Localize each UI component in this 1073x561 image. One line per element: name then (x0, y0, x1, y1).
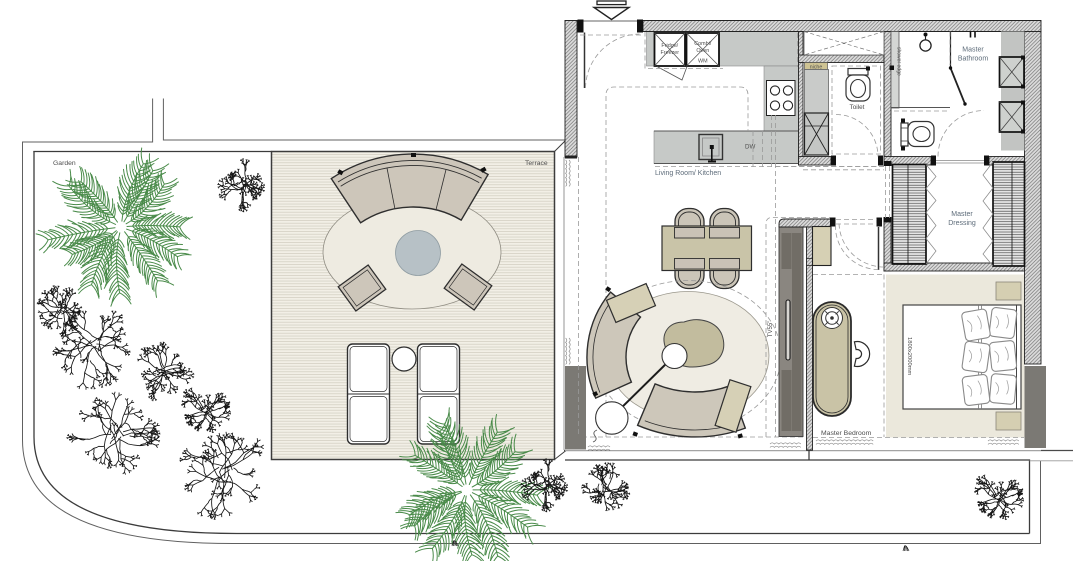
svg-text:WM: WM (698, 59, 708, 65)
svg-text:Living Room/ Kitchen: Living Room/ Kitchen (655, 170, 721, 177)
svg-text:TV55”: TV55” (768, 321, 774, 337)
svg-text:Master: Master (962, 47, 984, 54)
svg-text:Combi/: Combi/ (694, 41, 712, 47)
svg-text:Fridge/: Fridge/ (661, 43, 678, 49)
svg-text:1800x2000mm: 1800x2000mm (906, 337, 912, 376)
svg-text:Bathroom: Bathroom (958, 56, 989, 63)
svg-text:Toilet: Toilet (850, 104, 865, 111)
svg-text:Oven: Oven (696, 48, 709, 54)
svg-text:shower edge: shower edge (896, 47, 902, 76)
svg-text:Dressing: Dressing (948, 220, 976, 227)
svg-text:Master: Master (951, 211, 973, 218)
svg-text:Master Bedroom: Master Bedroom (821, 430, 872, 437)
svg-text:DW: DW (745, 144, 755, 151)
svg-text:Freezer: Freezer (661, 50, 680, 56)
svg-text:Terrace: Terrace (525, 160, 548, 167)
svg-text:Garden: Garden (53, 160, 76, 167)
